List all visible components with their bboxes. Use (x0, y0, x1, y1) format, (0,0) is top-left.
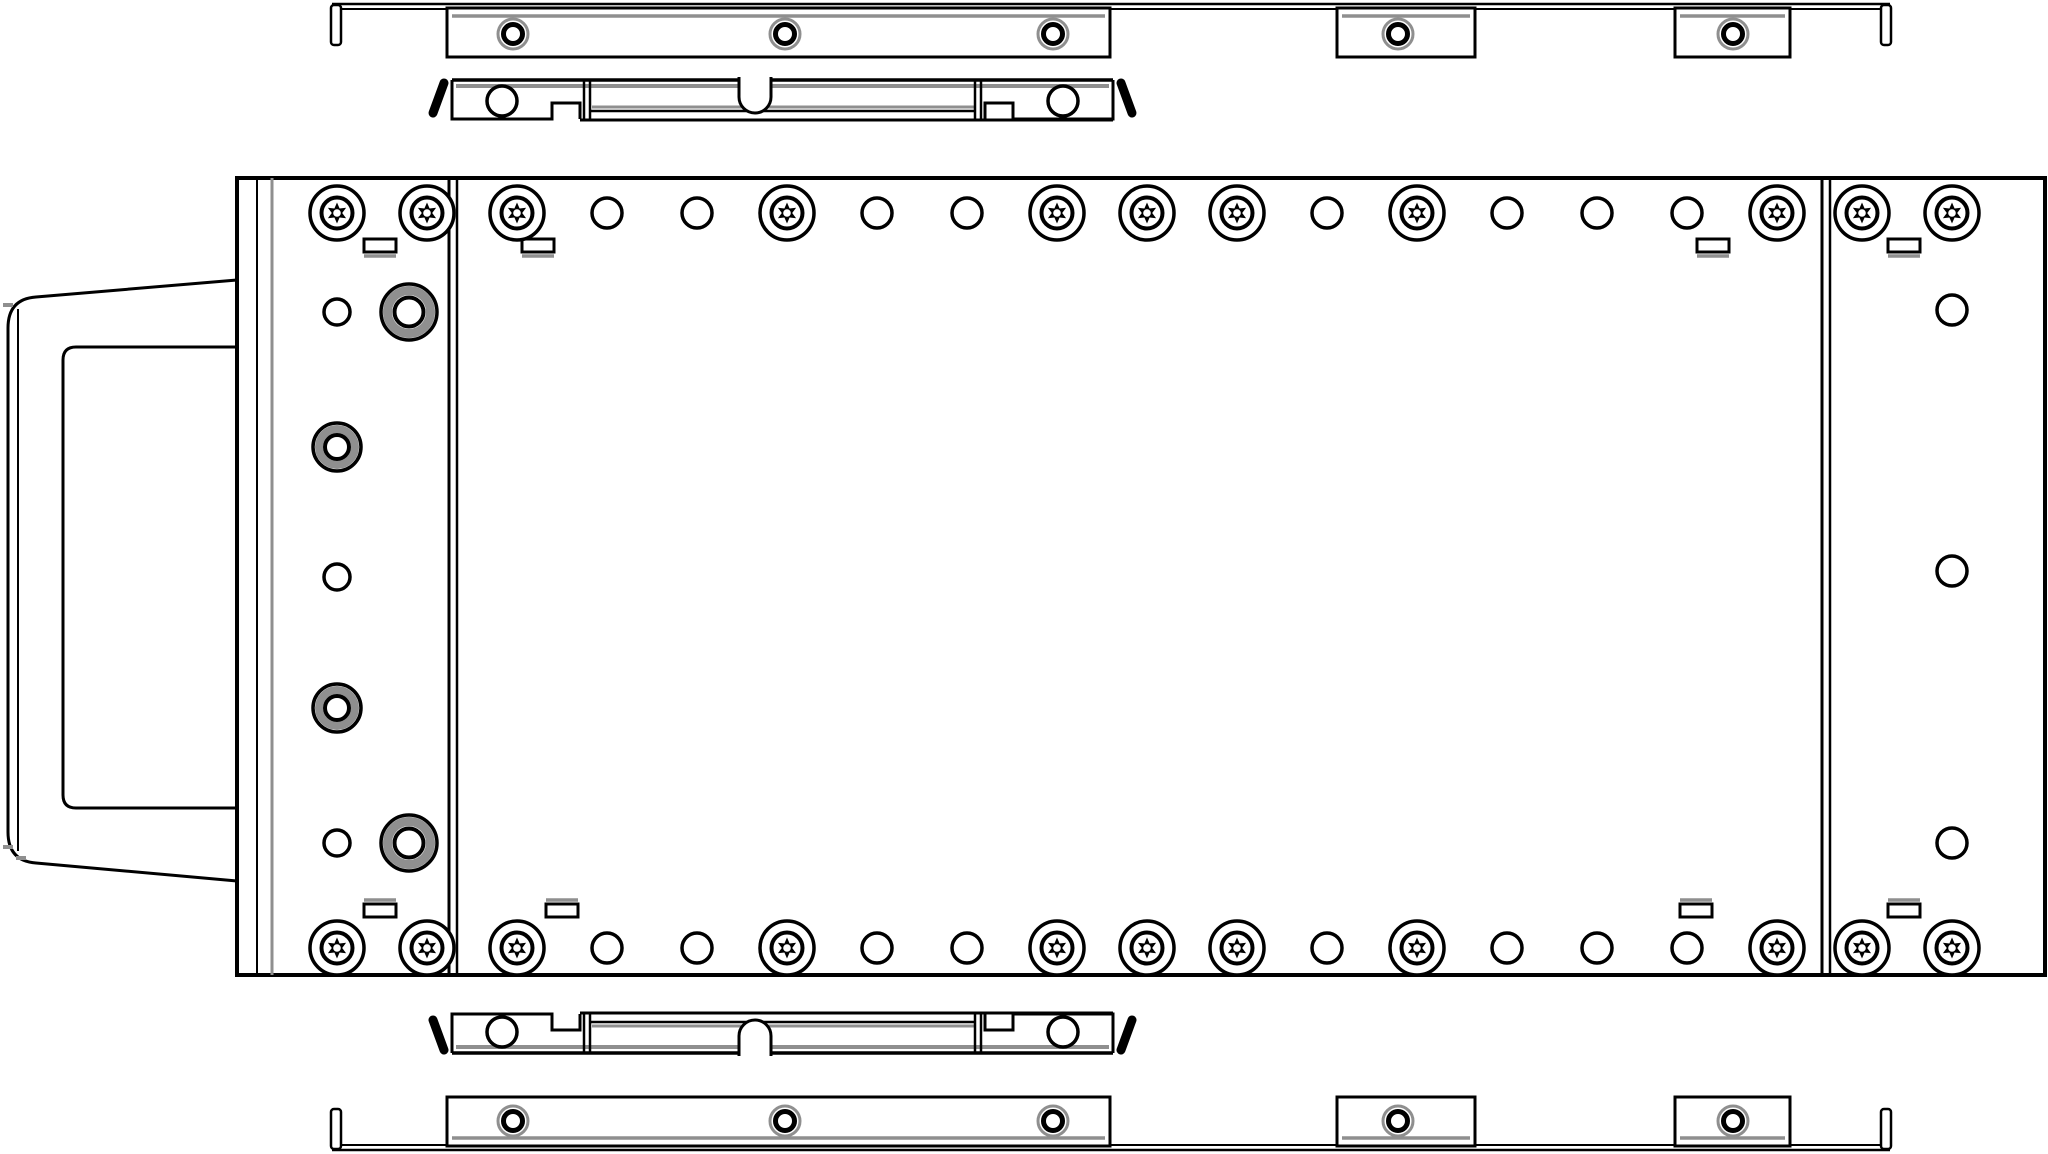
torx-screw-icon (310, 921, 364, 975)
rail-grommet-hole (1383, 19, 1413, 49)
rubber-grommet (313, 684, 361, 732)
torx-screw-icon (1210, 186, 1264, 240)
torx-screw-icon (1835, 921, 1889, 975)
mounting-slot (1888, 900, 1920, 917)
rail-grommet-hole (770, 19, 800, 49)
torx-screw-icon (1750, 921, 1804, 975)
torx-screw-icon (1835, 186, 1889, 240)
torx-screw-icon (1390, 186, 1444, 240)
mounting-slot (364, 900, 396, 917)
torx-screw-icon (1750, 186, 1804, 240)
mounting-slot (364, 239, 396, 256)
mounting-slot (1680, 900, 1712, 917)
torx-screw-icon (310, 186, 364, 240)
mounting-slot (522, 239, 554, 256)
rail-grommet-hole (498, 19, 528, 49)
rail-grommet-hole (1718, 1106, 1748, 1136)
torx-screw-icon (1390, 921, 1444, 975)
rubber-grommet (313, 423, 361, 471)
torx-screw-icon (400, 921, 454, 975)
top-mounting-rail (331, 4, 1891, 57)
bottom-latch-bracket (433, 1013, 1132, 1056)
rail-grommet-hole (498, 1106, 528, 1136)
rail-grommet-hole (1038, 19, 1068, 49)
rail-grommet-hole (1038, 1106, 1068, 1136)
rubber-grommet (381, 815, 437, 871)
mounting-slot (1697, 239, 1729, 256)
torx-screw-icon (1925, 186, 1979, 240)
torx-screw-icon (760, 186, 814, 240)
torx-screw-icon (400, 186, 454, 240)
torx-screw-icon (1210, 921, 1264, 975)
torx-screw-icon (760, 921, 814, 975)
rail-grommet-hole (1718, 19, 1748, 49)
torx-screw-icon (1120, 186, 1174, 240)
torx-screw-icon (1030, 186, 1084, 240)
carrier-handle (3, 280, 237, 881)
mounting-slot (546, 900, 578, 917)
page (0, 0, 2048, 1154)
torx-screw-icon (1030, 921, 1084, 975)
rubber-grommet (381, 284, 437, 340)
torx-screw-icon (490, 921, 544, 975)
drawing-canvas (0, 0, 2048, 1154)
bottom-mounting-rail (331, 1097, 1891, 1150)
torx-screw-icon (1925, 921, 1979, 975)
rail-grommet-hole (770, 1106, 800, 1136)
rail-grommet-hole (1383, 1106, 1413, 1136)
top-latch-bracket (433, 77, 1132, 120)
torx-screw-icon (1120, 921, 1174, 975)
mounting-slot (1888, 239, 1920, 256)
torx-screw-icon (490, 186, 544, 240)
tray-body (237, 178, 2045, 975)
